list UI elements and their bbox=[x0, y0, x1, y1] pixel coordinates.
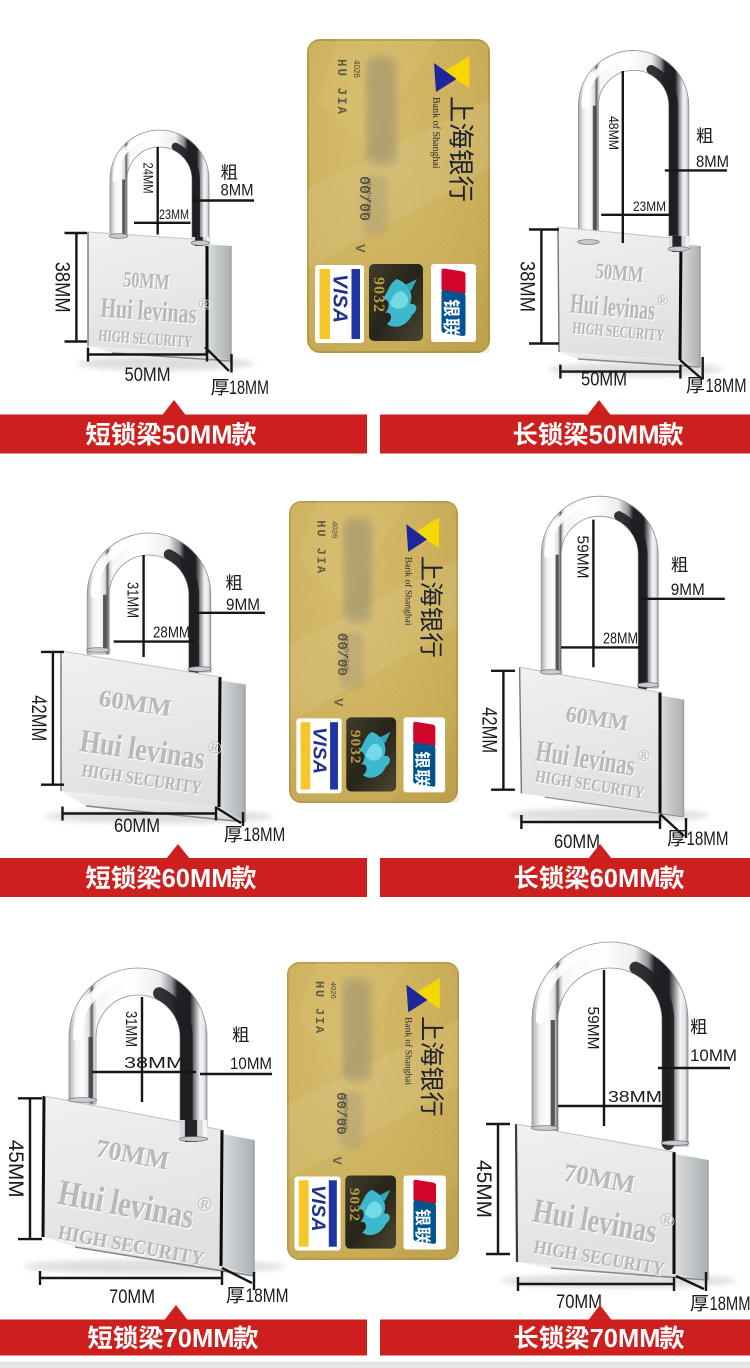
svg-text:8MM: 8MM bbox=[696, 153, 729, 171]
svg-text:9MM: 9MM bbox=[226, 596, 260, 614]
svg-text:59MM: 59MM bbox=[573, 536, 590, 579]
svg-text:50MM: 50MM bbox=[125, 365, 171, 386]
svg-text:70MM: 70MM bbox=[556, 1292, 602, 1313]
svg-text:10MM: 10MM bbox=[690, 1047, 737, 1065]
svg-text:50MM: 50MM bbox=[123, 266, 171, 294]
svg-text:28MM: 28MM bbox=[603, 630, 638, 647]
svg-text:8MM: 8MM bbox=[221, 182, 254, 200]
svg-text:38MM: 38MM bbox=[50, 262, 73, 313]
svg-text:42MM: 42MM bbox=[27, 695, 50, 741]
svg-text:18MM: 18MM bbox=[229, 378, 269, 399]
svg-text:70MM: 70MM bbox=[164, 1325, 235, 1353]
svg-text:60MM: 60MM bbox=[590, 865, 661, 893]
svg-text:9MM: 9MM bbox=[671, 581, 705, 599]
svg-text:50MM: 50MM bbox=[589, 422, 660, 450]
svg-text:10MM: 10MM bbox=[230, 1055, 272, 1073]
svg-text:59MM: 59MM bbox=[584, 1007, 601, 1050]
svg-text:18MM: 18MM bbox=[687, 829, 729, 850]
svg-text:50MM: 50MM bbox=[595, 258, 645, 287]
svg-text:48MM: 48MM bbox=[606, 116, 622, 150]
svg-text:45MM: 45MM bbox=[4, 1140, 27, 1198]
svg-text:23MM: 23MM bbox=[159, 206, 189, 222]
svg-text:18MM: 18MM bbox=[706, 376, 747, 397]
svg-text:18MM: 18MM bbox=[243, 825, 285, 846]
svg-text:28MM: 28MM bbox=[153, 625, 190, 642]
svg-text:45MM: 45MM bbox=[472, 1160, 495, 1218]
svg-text:50MM: 50MM bbox=[162, 422, 233, 450]
svg-text:24MM: 24MM bbox=[141, 163, 157, 194]
svg-text:60MM: 60MM bbox=[162, 865, 233, 893]
svg-text:38MM: 38MM bbox=[515, 261, 538, 312]
svg-text:18MM: 18MM bbox=[246, 1286, 289, 1307]
svg-text:50MM: 50MM bbox=[581, 370, 627, 391]
svg-text:38MM: 38MM bbox=[124, 1055, 184, 1072]
svg-text:70MM: 70MM bbox=[109, 1287, 155, 1308]
svg-text:23MM: 23MM bbox=[633, 198, 666, 214]
svg-text:38MM: 38MM bbox=[608, 1089, 662, 1106]
svg-text:18MM: 18MM bbox=[710, 1294, 750, 1315]
svg-text:31MM: 31MM bbox=[122, 1011, 139, 1047]
svg-text:70MM: 70MM bbox=[590, 1325, 661, 1353]
svg-text:®: ® bbox=[198, 296, 210, 313]
svg-text:®: ® bbox=[656, 292, 669, 309]
svg-text:60MM: 60MM bbox=[554, 832, 600, 853]
svg-text:60MM: 60MM bbox=[114, 816, 160, 837]
svg-text:42MM: 42MM bbox=[477, 707, 500, 753]
svg-text:31MM: 31MM bbox=[124, 582, 141, 618]
svg-text:®: ® bbox=[206, 736, 222, 758]
